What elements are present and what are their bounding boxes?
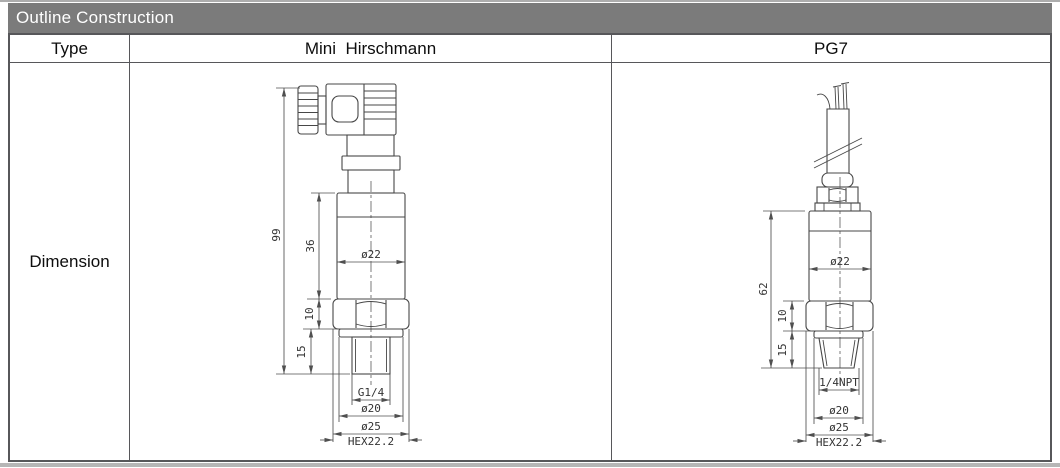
dimension-hex-size: HEX22.2: [320, 435, 422, 448]
sensor-body: [337, 181, 405, 385]
cable-break-mark: [814, 138, 862, 162]
page-top-rule: [0, 0, 1060, 2]
outline-construction-page: Outline Construction Type Mini Hirschman…: [0, 0, 1060, 468]
label-body-height: 36: [304, 239, 317, 252]
dimension-15: 15: [776, 331, 792, 368]
pg7-drawing-cell: 62 10 15 ø22: [612, 63, 1050, 460]
page-bottom-rule: [0, 463, 1060, 467]
pg7-drawing: 62 10 15 ø22: [612, 63, 1050, 460]
section-header-bar: Outline Construction: [8, 3, 1052, 33]
label-hex-size: HEX22.2: [348, 435, 394, 448]
dimension-row-label-cell: Dimension: [10, 63, 130, 460]
sensor-body: [809, 177, 871, 385]
outline-construction-table: Type Mini Hirschmann PG7 Dimension: [8, 33, 1052, 462]
type-header-label: Type: [51, 39, 88, 59]
label-thread-size: 1/4NPT: [819, 376, 859, 389]
pg7-header-label: PG7: [814, 39, 848, 59]
dimension-10: 10: [303, 299, 337, 329]
label-thread-length: 15: [776, 343, 789, 356]
dimension-62: 62: [757, 211, 822, 368]
dimension-thread-size: 1/4NPT: [819, 368, 859, 395]
dimension-36: 36: [304, 193, 335, 299]
label-flange-diameter: ø25: [829, 421, 849, 434]
cable-wires: [817, 83, 849, 110]
dimension-hex-size: HEX22.2: [793, 436, 886, 449]
label-flange-diameter: ø25: [361, 420, 381, 433]
dimension-thread-size: G1/4: [352, 374, 390, 405]
thread-stub: [814, 331, 863, 368]
cable-gland: [815, 173, 860, 211]
dimension-body-diameter: ø22: [337, 248, 405, 262]
label-thread-size: G1/4: [358, 386, 385, 399]
mini-hirschmann-header-label: Mini Hirschmann: [305, 39, 436, 59]
label-body-diameter: ø22: [361, 248, 381, 261]
label-hex-height: 10: [776, 309, 789, 322]
mini-hirschmann-header-cell: Mini Hirschmann: [130, 35, 612, 63]
section-title: Outline Construction: [16, 8, 174, 28]
type-header-cell: Type: [10, 35, 130, 63]
dimension-10: 10: [776, 301, 812, 331]
label-overall-height: 99: [270, 228, 283, 241]
pg7-header-cell: PG7: [612, 35, 1050, 63]
mini-hirschmann-drawing-cell: 99 36 10 15: [130, 63, 612, 460]
dimension-15: 15: [295, 329, 311, 374]
hex-nut: [806, 301, 873, 331]
hirschmann-connector: [298, 84, 400, 193]
label-hex-height: 10: [303, 307, 316, 320]
label-neck-diameter: ø20: [829, 404, 849, 417]
mini-hirschmann-drawing: 99 36 10 15: [130, 63, 610, 460]
cable: [814, 109, 862, 173]
label-body-diameter: ø22: [830, 255, 850, 268]
dimension-row-label: Dimension: [29, 252, 109, 272]
dimension-body-diameter: ø22: [809, 255, 871, 269]
dimension-99: 99: [270, 88, 350, 374]
label-thread-length: 15: [295, 345, 308, 358]
label-neck-diameter: ø20: [361, 402, 381, 415]
label-hex-size: HEX22.2: [816, 436, 862, 449]
label-overall-height: 62: [757, 282, 770, 295]
